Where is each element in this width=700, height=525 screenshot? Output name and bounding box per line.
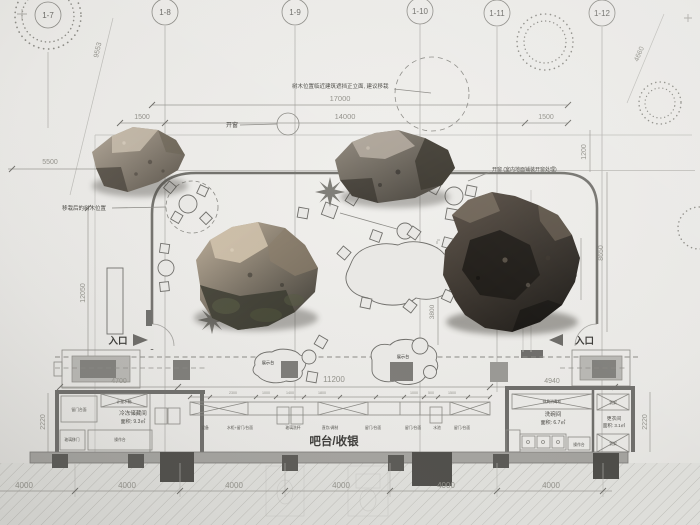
dim-counter-seg: 500 [428, 391, 434, 395]
dim-counter-seg: 2300 [229, 391, 237, 395]
left-room-label: 计量水箱 [116, 399, 131, 404]
grid-bubble-label: 1-11 [489, 9, 505, 18]
counter-label: 留门/台面 [365, 425, 381, 430]
tree-note: 树木位置临近建筑遮挡正立面, 建议移栽 [292, 82, 389, 90]
counter-label: 玻璃洗杯 [285, 425, 300, 430]
dim-counter-seg: 1000 [410, 391, 418, 395]
counter-label: 留门/台面 [454, 425, 470, 430]
entrance-right-label: 入口 [574, 336, 594, 347]
dim-bottom: 4000 [15, 481, 33, 490]
dim-bottom: 4000 [118, 481, 136, 490]
right-room-label: 货架 [609, 400, 617, 405]
counter-label: 直饮/调制 [322, 425, 338, 430]
changing-area: 面积: 3.1㎡ [603, 422, 626, 429]
dim-right-height: 8650 [598, 245, 605, 261]
dim-right-wall: 2220 [642, 414, 649, 430]
display-stand-right-label: 展示台 [397, 353, 410, 360]
entrance-left-label: 入口 [107, 336, 127, 347]
dishwash-area: 面积: 6.7㎡ [541, 419, 566, 426]
left-room-label: 操作台 [114, 437, 126, 442]
counter-label: 水池 [433, 425, 441, 430]
transplant-note: 移栽后的树木位置 [62, 204, 107, 212]
plan-drawing: 1-7 1-8 1-9 1-10 1-11 1-12 17000 1500 14… [0, 0, 700, 525]
dim-bottom: 4000 [437, 481, 455, 490]
dim-front-left: 4700 [111, 378, 127, 385]
dim-left-height: 12050 [80, 283, 87, 303]
counter-label: 设备 [201, 425, 209, 430]
dim-counter-seg: 1500 [448, 391, 456, 395]
dim-bottom: 4000 [225, 481, 243, 490]
changing-name: 更衣间 [607, 415, 622, 422]
grid-bubble-label: 1-8 [159, 8, 171, 17]
dim-left-offset: 5500 [42, 159, 58, 166]
bar-cashier-label: 吧台/收银 [309, 434, 359, 448]
right-room-label: 操作台 [573, 442, 585, 447]
counter-label: 留门/台面 [405, 425, 421, 430]
grid-bubble-label: 1-12 [594, 9, 611, 18]
dim-left-wall: 2220 [40, 414, 47, 430]
right-room-label: 货架 [609, 441, 617, 446]
grid-bubble-label: 1-7 [42, 11, 54, 20]
dim-bottom: 4000 [542, 481, 560, 490]
dim-bottom: 4000 [332, 481, 350, 490]
dim-seg-right: 1500 [538, 114, 554, 121]
floor-plan-photo: 1-7 1-8 1-9 1-10 1-11 1-12 17000 1500 14… [0, 0, 700, 525]
dim-right-top: 1200 [581, 144, 588, 160]
dim-front-mid: 11200 [323, 375, 345, 384]
freezer-name: 冷冻储藏间 [119, 409, 147, 417]
dim-counter-seg: 1800 [318, 391, 326, 395]
window-detail-note: 开窗 (室内地面铺装开窗处理) [492, 166, 557, 173]
dim-top-total: 17000 [330, 94, 351, 103]
dim-mid-inner: 3800 [429, 304, 436, 319]
dim-seg-mid: 14000 [335, 112, 356, 121]
dim-front-right: 4940 [544, 378, 560, 385]
freezer-area: 面积: 9.3㎡ [121, 418, 146, 425]
grid-bubble-label: 1-9 [289, 8, 301, 17]
left-room-label: 玻璃移门 [64, 437, 79, 442]
window-note: 开窗 [226, 121, 238, 129]
dishwash-name: 洗碗间 [545, 410, 562, 418]
left-room-label: 留门台面 [71, 407, 86, 412]
display-stand-left-label: 展示台 [262, 359, 275, 366]
counter-label: 水柜+留门/台面 [227, 425, 253, 430]
grid-bubble-label: 1-10 [412, 7, 429, 16]
dim-seg-left: 1500 [134, 114, 150, 121]
dim-counter-seg: 1400 [286, 391, 294, 395]
dim-counter-seg: 1000 [262, 391, 270, 395]
right-room-label: 餐具消毒柜 [543, 399, 562, 404]
